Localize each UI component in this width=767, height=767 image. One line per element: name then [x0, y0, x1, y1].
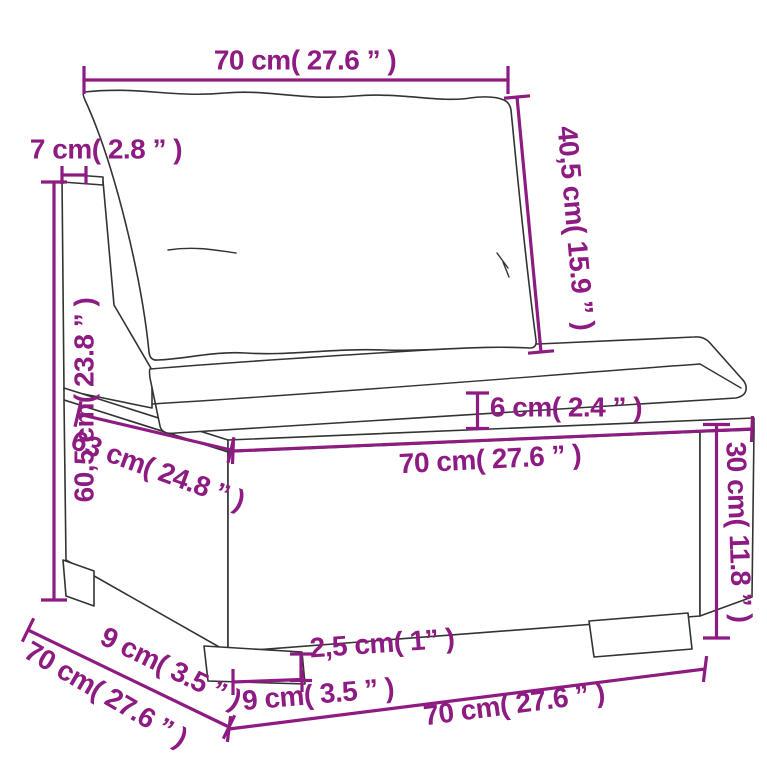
dim-total-width-label: 70 cm( 27.6 ” )	[422, 677, 607, 732]
sofa-line-drawing: 70 cm( 27.6 ” ) 7 cm( 2.8 ” ) 40,5 cm( 1…	[0, 0, 767, 767]
foot-front-right	[589, 613, 692, 657]
dim-foot-height: 2,5 cm( 1” )	[290, 622, 455, 680]
dim-cushion-thickness: 6 cm( 2.4 ” )	[466, 392, 642, 429]
back-cushion	[83, 90, 536, 360]
dim-base-height-label: 30 cm( 11.8 ” )	[720, 441, 757, 623]
dim-cushion-thickness-label: 6 cm( 2.4 ” )	[490, 392, 642, 423]
dim-top-width-label: 70 cm( 27.6 ” )	[214, 45, 396, 76]
dim-back-frame-depth-label: 7 cm( 2.8 ” )	[30, 134, 182, 165]
dim-back-cushion-height-label: 40,5 cm( 15.9 ” )	[552, 125, 601, 332]
dim-top-width: 70 cm( 27.6 ” )	[84, 45, 508, 95]
product-dimension-diagram: 70 cm( 27.6 ” ) 7 cm( 2.8 ” ) 40,5 cm( 1…	[0, 0, 767, 767]
dim-back-height-label: 60,5 cm( 23.8 ” )	[69, 298, 100, 503]
